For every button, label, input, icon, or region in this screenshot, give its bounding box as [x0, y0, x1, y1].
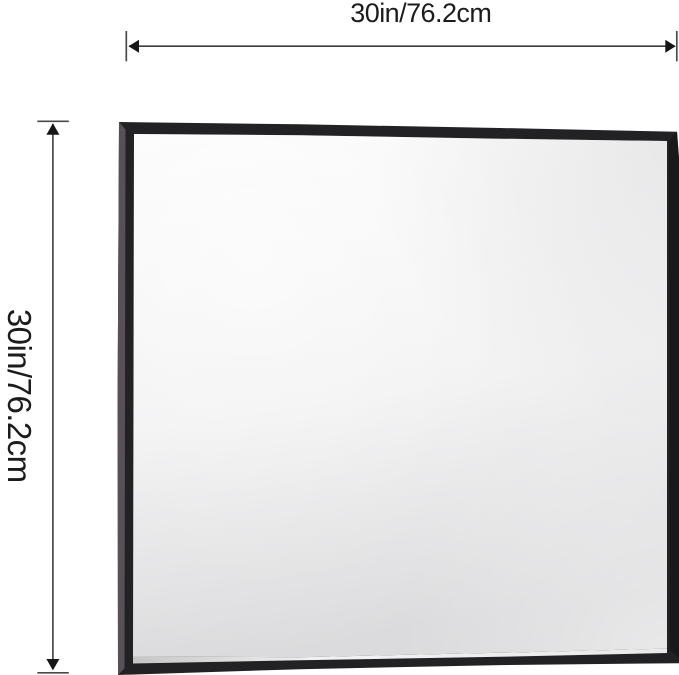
- svg-text:30in/76.2cm: 30in/76.2cm: [350, 0, 491, 28]
- svg-text:30in/76.2cm: 30in/76.2cm: [1, 309, 38, 483]
